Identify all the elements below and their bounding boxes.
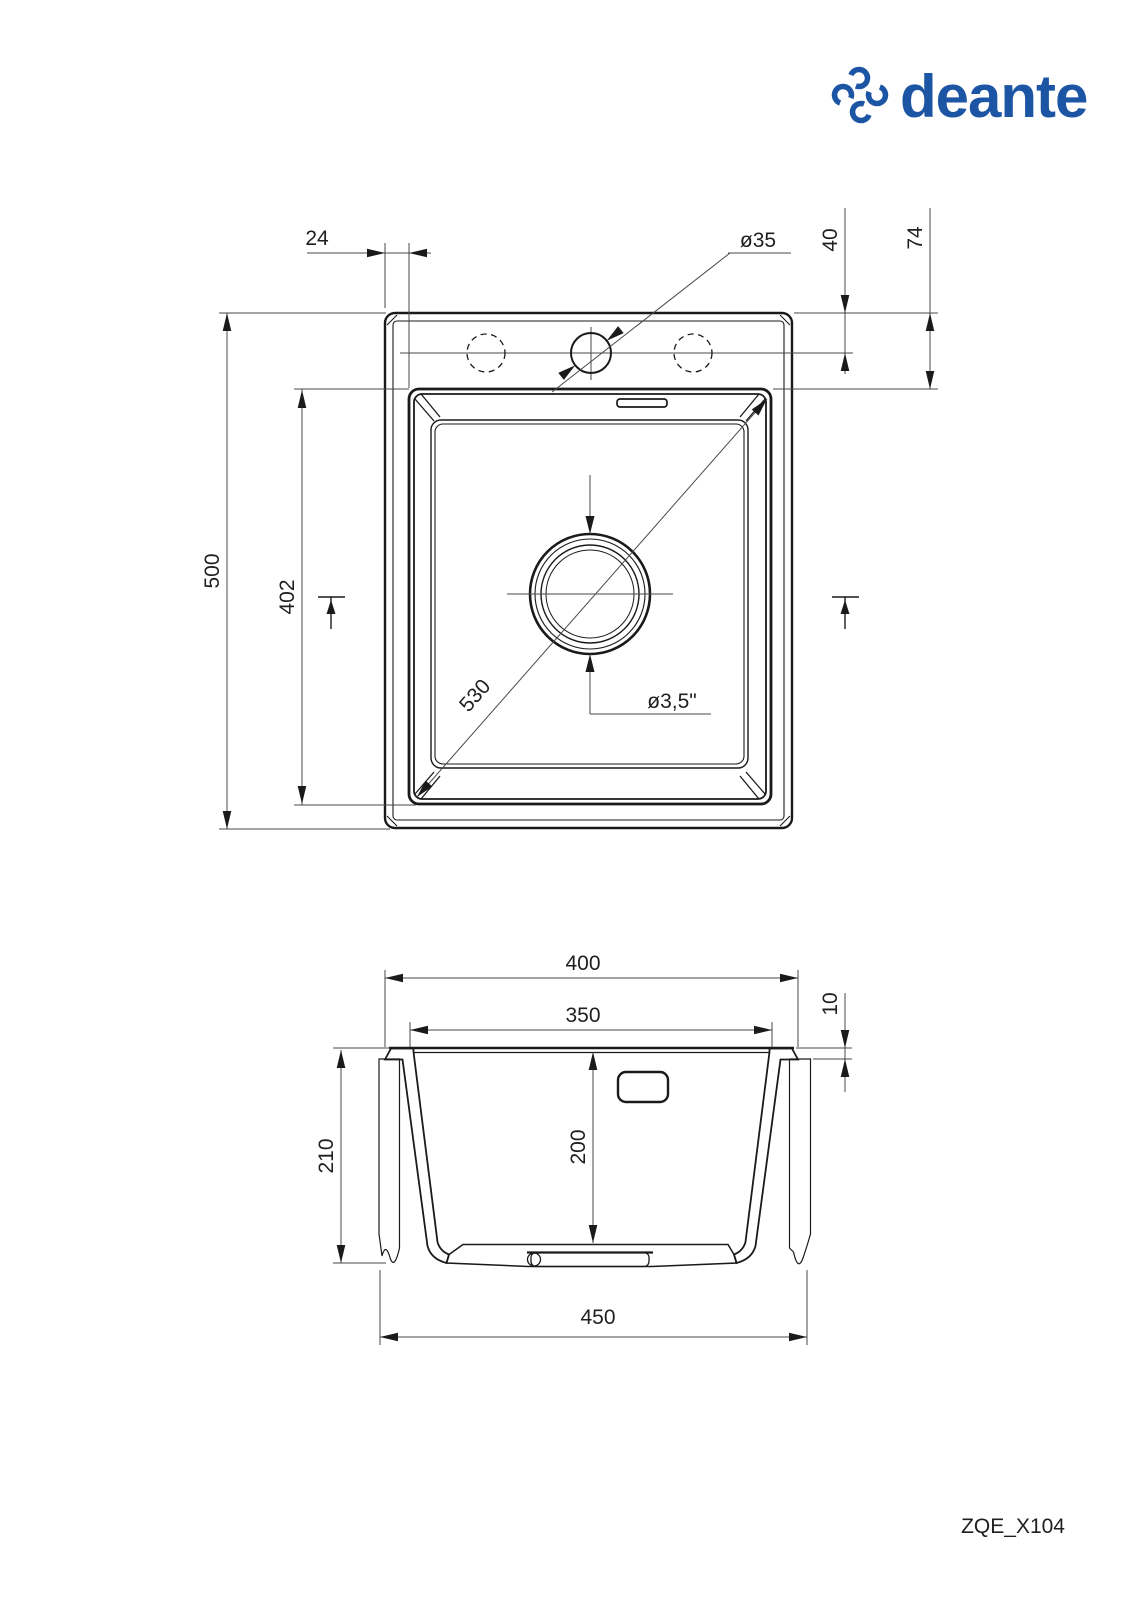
dim-arrow xyxy=(367,249,385,258)
dim-label-o35: ø35 xyxy=(740,229,776,252)
dim-label-210: 210 xyxy=(315,1138,338,1173)
drawing-page: deante xyxy=(0,0,1131,1600)
drain-section xyxy=(527,1253,653,1267)
dim-arrow xyxy=(409,249,427,258)
drain-lug xyxy=(528,1253,541,1266)
pinwheel-arc-bottom xyxy=(850,101,872,123)
floor-section xyxy=(447,1245,737,1267)
dim-overall-width: 400 xyxy=(385,952,798,1047)
top-view: 24 500 402 ø35 xyxy=(201,208,938,829)
dim-arrow xyxy=(223,313,232,331)
bowl-opening-inner-rect xyxy=(414,394,766,799)
dim-arrow xyxy=(385,974,403,983)
sink-inner-offset-rect xyxy=(393,321,784,820)
dim-arrow xyxy=(410,1026,428,1035)
dim-arrow xyxy=(586,654,595,672)
dim-bowl-width: 350 xyxy=(410,1004,772,1047)
dim-arrow xyxy=(589,1052,598,1070)
pinwheel-arc-top xyxy=(848,67,870,89)
left-wall-section xyxy=(385,1049,449,1264)
technical-drawing: deante xyxy=(0,0,1131,1600)
dim-arrow xyxy=(780,974,798,983)
countertop-right xyxy=(790,1059,811,1264)
dim-arrow xyxy=(337,1245,346,1263)
bowl-plan xyxy=(409,389,771,804)
faucet-deck xyxy=(400,327,853,380)
dim-label-200: 200 xyxy=(567,1129,590,1164)
dim-arrow xyxy=(558,365,575,380)
dim-arrow xyxy=(298,786,307,804)
dim-label-450: 450 xyxy=(580,1306,615,1329)
dim-arrow xyxy=(752,399,767,416)
dim-arrow xyxy=(298,390,307,408)
dim-label-400: 400 xyxy=(565,952,600,975)
dim-rim-height: 10 xyxy=(796,992,852,1092)
dim-label-350: 350 xyxy=(565,1004,600,1027)
dim-arrow xyxy=(841,1030,850,1048)
dim-diagonal: 530 xyxy=(417,399,767,797)
dim-faucet-hole: ø35 xyxy=(552,229,791,392)
overflow-slot-plan xyxy=(617,399,667,407)
dim-label-40: 40 xyxy=(819,228,842,251)
leader-line xyxy=(552,253,730,392)
pinwheel-arc-right xyxy=(866,84,888,106)
dim-arrow xyxy=(926,371,935,389)
right-wall-section xyxy=(734,1049,798,1264)
dim-arrow xyxy=(926,313,935,331)
deante-pinwheel-icon xyxy=(832,67,888,123)
dim-label-24: 24 xyxy=(305,227,329,250)
dim-label-530: 530 xyxy=(455,675,495,717)
dim-label-402: 402 xyxy=(276,579,299,614)
pinwheel-arc-left xyxy=(832,84,854,106)
countertop-left xyxy=(379,1059,400,1262)
dim-arrow xyxy=(789,1333,807,1342)
model-code: ZQE_X104 xyxy=(961,1515,1065,1538)
brand-logo: deante xyxy=(832,63,1087,130)
dim-deck-depth: 74 xyxy=(773,208,938,389)
overflow-hole-section xyxy=(618,1072,668,1102)
dim-arrow xyxy=(841,353,850,371)
dim-label-drain: ø3,5" xyxy=(647,690,696,713)
dim-label-74: 74 xyxy=(904,226,927,250)
dim-bowl-depth: 200 xyxy=(567,1052,597,1243)
dim-arrow xyxy=(337,1050,346,1068)
dim-arrow xyxy=(586,516,595,534)
bowl-opening-rect xyxy=(409,389,771,804)
brand-wordmark: deante xyxy=(900,63,1087,130)
dim-label-500: 500 xyxy=(201,553,224,588)
bowl-corner-slopes xyxy=(415,394,765,799)
dim-arrow xyxy=(380,1333,398,1342)
dim-arrow xyxy=(754,1026,772,1035)
corner-chamfer-ticks xyxy=(387,315,790,826)
dim-label-10: 10 xyxy=(819,992,842,1015)
dim-arrow xyxy=(841,1059,850,1077)
dim-arrow xyxy=(841,295,850,313)
dim-bowl-length: 402 xyxy=(276,389,416,805)
drain-flange xyxy=(531,1253,649,1267)
dim-cutout-width: 450 xyxy=(380,1270,807,1345)
dim-overall-length: 500 xyxy=(201,313,390,829)
clip-arrow-left xyxy=(327,600,336,614)
dim-line xyxy=(417,399,767,797)
dim-arrow xyxy=(223,811,232,829)
dim-arrow xyxy=(589,1225,598,1243)
drain-plan xyxy=(507,534,673,654)
clip-arrow-right xyxy=(841,600,850,614)
dim-rim-to-bowl: 24 xyxy=(305,227,431,388)
section-view: 400 350 10 210 xyxy=(315,952,852,1345)
